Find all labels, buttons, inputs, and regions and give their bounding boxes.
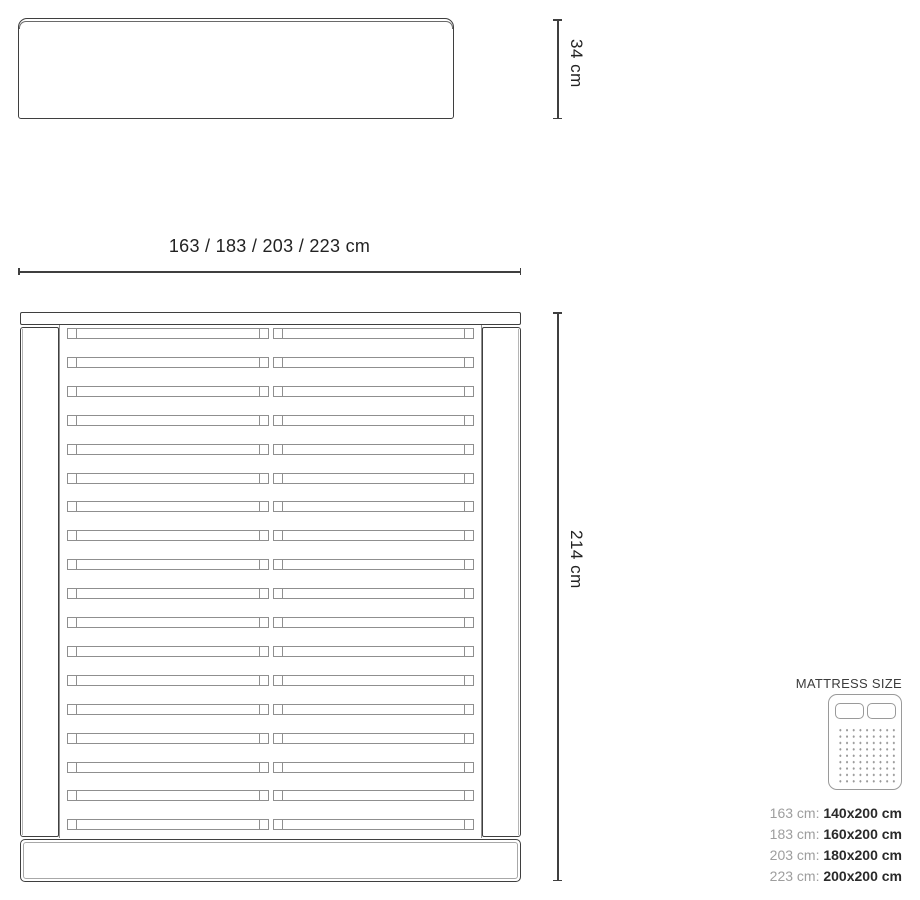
slat-right-half (273, 733, 475, 744)
slat-row (67, 473, 474, 484)
mattress-dots-pattern (836, 726, 896, 783)
slat-row (67, 762, 474, 773)
slat-row (67, 444, 474, 455)
slat-row (67, 675, 474, 686)
headboard-height-dimension: 34 cm (557, 19, 591, 119)
slat-area (59, 325, 482, 838)
slat-right-half (273, 473, 475, 484)
slat-row (67, 328, 474, 339)
frame-size-label: 163 cm: (770, 805, 820, 821)
slat-row (67, 819, 474, 830)
slat-row (67, 790, 474, 801)
rail-inner-line (22, 329, 23, 835)
dimension-line-vertical (557, 312, 559, 881)
bed-side-rail-left (20, 327, 59, 837)
slat-row (67, 646, 474, 657)
slat-row (67, 617, 474, 628)
bed-length-dimension: 214 cm (557, 312, 591, 881)
slat-left-half (67, 357, 269, 368)
bed-width-label: 163 / 183 / 203 / 223 cm (18, 236, 521, 257)
pillow-icon (867, 703, 896, 719)
pillow-icon (835, 703, 864, 719)
headboard-height-label: 34 cm (566, 39, 586, 88)
slat-left-half (67, 386, 269, 397)
slat-right-half (273, 559, 475, 570)
slat-left-half (67, 704, 269, 715)
slat-left-half (67, 733, 269, 744)
slat-row (67, 733, 474, 744)
slat-left-half (67, 819, 269, 830)
slat-row (67, 704, 474, 715)
slat-right-half (273, 762, 475, 773)
slat-left-half (67, 559, 269, 570)
slat-right-half (273, 790, 475, 801)
size-row: 203 cm: 180x200 cm (770, 845, 902, 866)
slat-right-half (273, 386, 475, 397)
slat-row (67, 415, 474, 426)
size-row: 163 cm: 140x200 cm (770, 803, 902, 824)
mattress-size-value: 180x200 cm (823, 847, 902, 863)
slat-right-half (273, 328, 475, 339)
slat-left-half (67, 617, 269, 628)
slat-right-half (273, 588, 475, 599)
footboard-inner-line (23, 842, 518, 879)
slat-left-half (67, 415, 269, 426)
slat-row (67, 530, 474, 541)
mattress-size-value: 160x200 cm (823, 826, 902, 842)
slat-right-half (273, 415, 475, 426)
mattress-size-value: 200x200 cm (823, 868, 902, 884)
slat-row (67, 559, 474, 570)
slat-right-half (273, 530, 475, 541)
rail-inner-line (518, 329, 519, 835)
slat-left-half (67, 328, 269, 339)
frame-size-label: 223 cm: (770, 868, 820, 884)
headboard-side-view (18, 18, 454, 119)
slat-right-half (273, 617, 475, 628)
bed-side-rail-right (482, 327, 521, 837)
mattress-size-table: 163 cm: 140x200 cm 183 cm: 160x200 cm 20… (770, 803, 902, 887)
slat-left-half (67, 530, 269, 541)
mattress-size-title: MATTRESS SIZE (796, 676, 902, 691)
slat-right-half (273, 819, 475, 830)
slat-left-half (67, 790, 269, 801)
dimension-line-horizontal (18, 271, 521, 273)
slat-row (67, 501, 474, 512)
slat-row (67, 386, 474, 397)
slat-right-half (273, 501, 475, 512)
mattress-size-value: 140x200 cm (823, 805, 902, 821)
slat-right-half (273, 704, 475, 715)
mattress-icon (828, 694, 902, 790)
bed-dimension-diagram: 34 cm 163 / 183 / 203 / 223 cm 214 cm MA… (0, 0, 920, 900)
slat-right-half (273, 675, 475, 686)
bed-footboard-top-view (20, 839, 521, 882)
frame-size-label: 183 cm: (770, 826, 820, 842)
slat-row (67, 588, 474, 599)
slat-right-half (273, 357, 475, 368)
headboard-top-edge-line (19, 21, 453, 29)
size-row: 183 cm: 160x200 cm (770, 824, 902, 845)
bed-headboard-top-view (20, 312, 521, 325)
dimension-line-vertical (557, 19, 559, 119)
size-row: 223 cm: 200x200 cm (770, 866, 902, 887)
slat-right-half (273, 444, 475, 455)
bed-length-label: 214 cm (566, 530, 586, 589)
slat-row (67, 357, 474, 368)
slat-right-half (273, 646, 475, 657)
slat-left-half (67, 588, 269, 599)
slat-left-half (67, 675, 269, 686)
slat-left-half (67, 444, 269, 455)
slat-left-half (67, 762, 269, 773)
slat-left-half (67, 646, 269, 657)
slat-left-half (67, 473, 269, 484)
slat-left-half (67, 501, 269, 512)
frame-size-label: 203 cm: (770, 847, 820, 863)
